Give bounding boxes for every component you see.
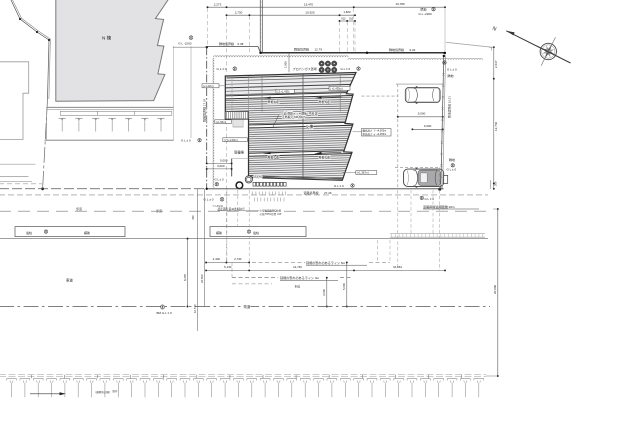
svg-text:隣地境界線: 隣地境界線 [389, 47, 404, 52]
svg-text:(+1,367m): (+1,367m) [357, 171, 369, 175]
svg-text:BM·G L ± 0: BM·G L ± 0 [157, 311, 173, 315]
svg-text:(横断防止柵): (横断防止柵) [96, 390, 110, 394]
svg-text:小型乗用車PIC位置: 小型乗用車PIC位置 [260, 209, 282, 213]
svg-text:延焼の恐れのあるライン 3m: 延焼の恐れのあるライン 3m [280, 275, 320, 280]
svg-text:(雨水枡): (雨水枡) [253, 174, 262, 178]
svg-text:車道: 車道 [295, 285, 301, 289]
svg-text:5,000: 5,000 [342, 283, 346, 290]
svg-text:プロパンガス置場: プロパンガス置場 [293, 66, 317, 71]
svg-text:G L -2200: G L -2200 [178, 42, 192, 46]
svg-text:屋根勾配: 屋根勾配 [319, 99, 331, 104]
svg-text:3,000: 3,000 [424, 124, 432, 128]
svg-text:歩道: 歩道 [156, 208, 162, 213]
svg-text:6.38: 6.38 [238, 42, 244, 46]
svg-text:屋根勾配: 屋根勾配 [319, 154, 331, 159]
svg-text:道路斜線適用距離 20m: 道路斜線適用距離 20m [423, 204, 455, 209]
svg-text:G L ± 0: G L ± 0 [341, 67, 351, 71]
svg-text:2,400: 2,400 [213, 257, 221, 261]
svg-text:隣地: 隣地 [449, 157, 455, 162]
svg-text:補助: 補助 [216, 230, 222, 235]
svg-text:G L ± 0: G L ± 0 [447, 168, 457, 172]
svg-text:軒高高さ イ +4,053m: 軒高高さ イ +4,053m [363, 132, 387, 136]
svg-text:の各戸PIC位置 ×6P: の各戸PIC位置 ×6P [260, 212, 282, 216]
svg-text:G L ± 0: G L ± 0 [217, 67, 227, 71]
svg-text:910: 910 [349, 17, 354, 20]
svg-text:22,500: 22,500 [200, 274, 204, 283]
svg-text:不燃番号 NM-8697: 不燃番号 NM-8697 [282, 115, 306, 119]
svg-text:1,820: 1,820 [343, 10, 351, 14]
svg-text:27.46: 27.46 [324, 191, 332, 195]
svg-text:8,265: 8,265 [183, 274, 187, 281]
svg-text:G L ± 0: G L ± 0 [215, 178, 224, 182]
svg-text:2,730: 2,730 [235, 11, 243, 15]
svg-text:10,920: 10,920 [305, 11, 315, 15]
svg-text:15,470: 15,470 [304, 3, 314, 7]
svg-text:屋根勾配: 屋根勾配 [268, 99, 280, 104]
svg-text:( ロ+1,50m): ( ロ+1,50m) [224, 138, 238, 142]
svg-text:9.32: 9.32 [410, 48, 416, 52]
svg-text:認定道路 第42条1項1号: 認定道路 第42条1項1号 [218, 207, 246, 211]
svg-text:道路境界線: 道路境界線 [304, 190, 319, 195]
svg-text:隣地境界線 16.31: 隣地境界線 16.31 [448, 96, 452, 118]
svg-text:3,000: 3,000 [322, 289, 326, 296]
svg-text:既存: 既存 [113, 389, 119, 393]
svg-text:200: 200 [493, 181, 497, 186]
svg-text:16,570: 16,570 [193, 304, 197, 313]
svg-text:車道: 車道 [66, 278, 73, 283]
svg-text:2,273: 2,273 [214, 3, 222, 7]
svg-text:駐輪場: 駐輪場 [234, 149, 244, 154]
svg-text:10,664: 10,664 [393, 265, 402, 269]
svg-text:3,000: 3,000 [217, 164, 225, 168]
svg-text:補助: 補助 [84, 230, 90, 235]
svg-text:2,637: 2,637 [494, 60, 498, 68]
svg-text:1,000: 1,000 [283, 61, 287, 68]
svg-text:県道: 県道 [244, 304, 251, 309]
svg-text:N 棟: N 棟 [102, 35, 112, 42]
svg-text:5,130: 5,130 [224, 265, 232, 269]
svg-text:G L ± 0: G L ± 0 [204, 198, 214, 202]
svg-text:延焼の恐れのあるライン 5m: 延焼の恐れのあるライン 5m [306, 260, 346, 265]
svg-text:S 棟: S 棟 [306, 124, 314, 129]
svg-text:12,740: 12,740 [494, 121, 498, 131]
svg-text:20,000: 20,000 [493, 284, 497, 294]
svg-text:G L ± 0: G L ± 0 [334, 184, 344, 188]
svg-text:5,000: 5,000 [220, 158, 228, 162]
svg-text:G L ± 0: G L ± 0 [181, 138, 191, 142]
svg-text:G L ± 0: G L ± 0 [447, 67, 457, 71]
svg-text:歩道: 歩道 [76, 206, 82, 211]
svg-text:隣地境界線: 隣地境界線 [294, 47, 309, 52]
svg-text:電柱: 電柱 [253, 230, 259, 235]
svg-text:屋根勾配: 屋根勾配 [268, 154, 280, 159]
svg-text:G L -2200: G L -2200 [419, 12, 433, 16]
svg-text:12.79: 12.79 [315, 48, 323, 52]
svg-text:910: 910 [341, 17, 346, 20]
svg-text:5,000: 5,000 [418, 112, 426, 116]
svg-text:(+1,42m): (+1,42m) [203, 84, 214, 88]
svg-text:電柱: 電柱 [26, 230, 32, 235]
svg-text:隣地境界線 17.07: 隣地境界線 17.07 [201, 98, 206, 122]
svg-text:最高高さ ア +4,553m: 最高高さ ア +4,553m [363, 129, 387, 133]
svg-text:(+1,50m): (+1,50m) [216, 120, 227, 124]
svg-text:隣地境界線: 隣地境界線 [219, 41, 234, 46]
svg-text:2,730: 2,730 [234, 257, 242, 261]
svg-text:隣地: 隣地 [448, 73, 454, 78]
svg-text:10,789: 10,789 [395, 2, 405, 6]
svg-text:(ス+1,435): (ス+1,435) [277, 89, 289, 93]
svg-text:12,740: 12,740 [293, 265, 302, 269]
svg-text:( +1,435m): ( +1,435m) [330, 86, 343, 90]
svg-text:930: 930 [192, 215, 195, 220]
